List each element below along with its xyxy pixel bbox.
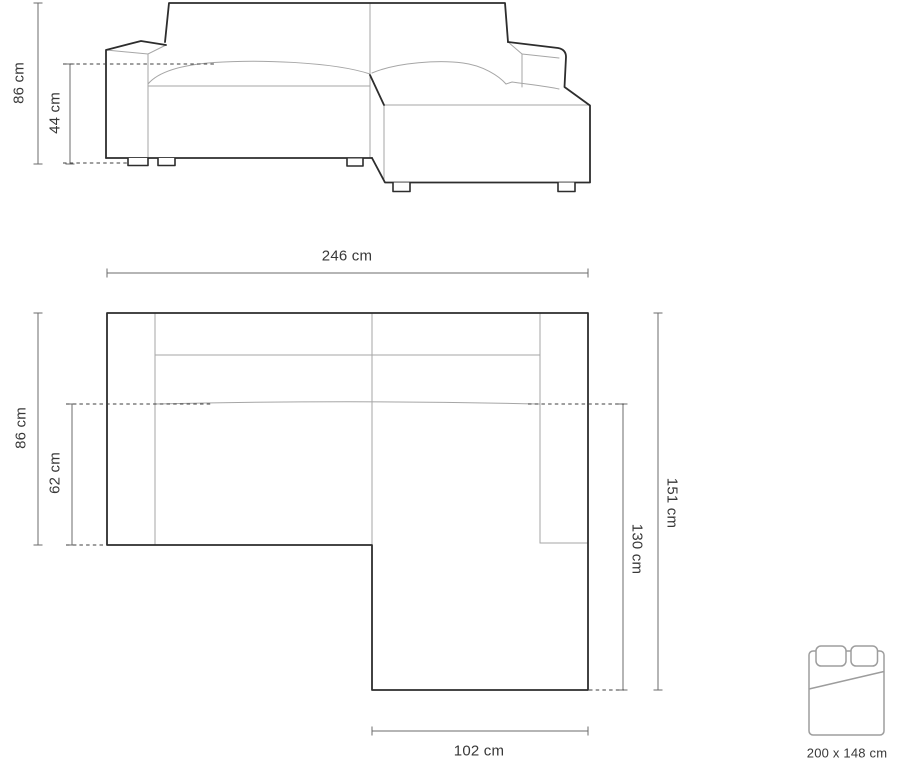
plan-chaise-width-label: 102 cm bbox=[454, 744, 504, 759]
front-view-dimension-lines bbox=[34, 3, 216, 164]
bed-size-label: 200 x 148 cm bbox=[807, 747, 887, 760]
plan-total-width-label: 246 cm bbox=[322, 249, 372, 264]
plan-chaise-depth-label: 130 cm bbox=[630, 524, 645, 574]
sofa-dimensions-diagram: 86 cm 44 cm 246 cm 86 cm 62 cm 151 cm 13… bbox=[0, 0, 900, 770]
front-seat-height-label: 44 cm bbox=[48, 92, 63, 134]
plan-view-sofa-drawing bbox=[107, 313, 588, 690]
bed-icon bbox=[809, 646, 884, 735]
diagram-linework bbox=[0, 0, 900, 770]
plan-body-depth-label: 86 cm bbox=[14, 407, 29, 449]
plan-seat-depth-label: 62 cm bbox=[48, 452, 63, 494]
front-total-height-label: 86 cm bbox=[12, 62, 27, 104]
plan-view-dimension-lines bbox=[34, 269, 663, 736]
front-view-sofa-drawing bbox=[106, 3, 590, 192]
plan-total-depth-label: 151 cm bbox=[665, 478, 680, 528]
